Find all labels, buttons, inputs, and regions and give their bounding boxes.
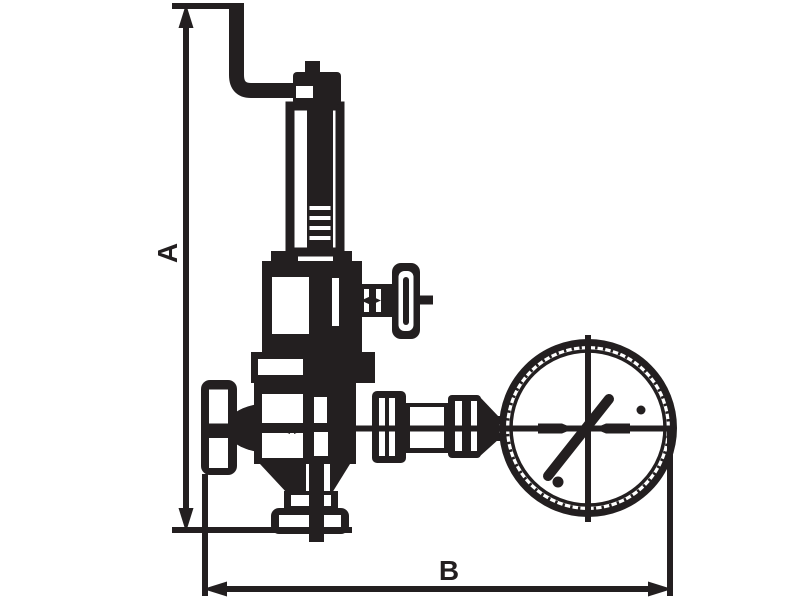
pipe-window-bottom <box>410 431 444 448</box>
gauge-needle-tail-dot <box>553 477 564 488</box>
body-window-lower-left <box>262 433 303 458</box>
spring-column-rod <box>307 103 333 253</box>
chamber-slot <box>332 278 339 326</box>
body-slot-upper-right <box>314 397 327 423</box>
valve-drawing: A B <box>0 0 800 598</box>
pressure-gauge <box>503 335 674 522</box>
rod-thread-tick <box>310 216 331 220</box>
rod-thread-tick <box>310 236 331 240</box>
diagram-canvas: A B <box>0 0 800 598</box>
tee-tip <box>420 296 433 305</box>
gauge-face-dot <box>637 406 646 415</box>
cap-slot <box>296 86 313 98</box>
outlet-taper <box>260 464 350 493</box>
bonnet-flange <box>251 352 375 383</box>
spring-column <box>290 103 340 253</box>
dimension-a-label: A <box>152 243 183 263</box>
rod-thread-tick <box>310 226 331 230</box>
valve-assembly <box>201 3 674 542</box>
valve-body <box>254 380 356 464</box>
adjusting-cap <box>293 61 341 105</box>
tee-bar-core <box>403 277 409 325</box>
spring-chamber <box>262 251 362 358</box>
lever-pipe <box>237 3 298 91</box>
side-tee-handle <box>358 263 433 339</box>
rod-thread-tick <box>310 206 331 210</box>
chamber-window <box>272 277 309 334</box>
dimension-b-label: B <box>439 555 459 586</box>
pipe-window-top <box>410 407 444 426</box>
handwheel-window-top <box>209 390 228 424</box>
handwheel-window-bottom <box>209 438 228 468</box>
body-window-upper-left <box>262 394 303 423</box>
bonnet-flange-window <box>258 359 303 375</box>
body-slot-lower-right <box>314 432 328 456</box>
